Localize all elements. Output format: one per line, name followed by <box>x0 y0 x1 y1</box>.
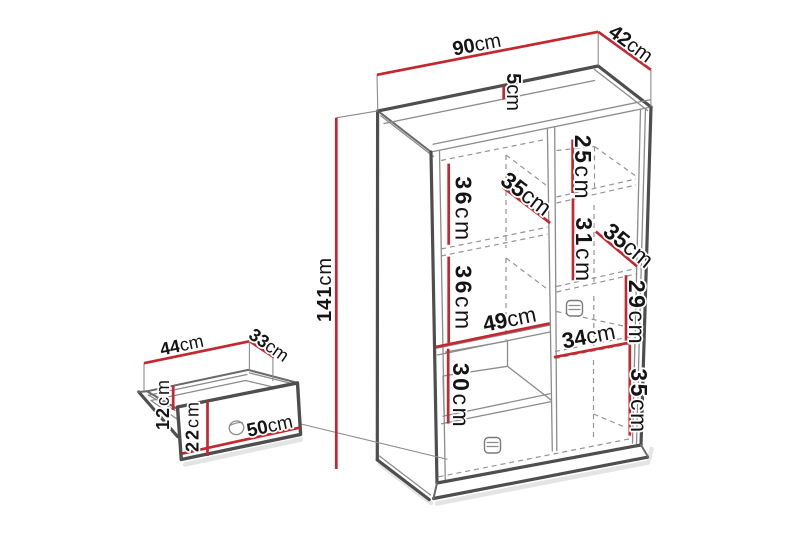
svg-text:36cm: 36cm <box>451 265 477 331</box>
svg-text:35cm: 35cm <box>626 368 652 434</box>
svg-text:141cm: 141cm <box>314 257 336 322</box>
svg-text:31cm: 31cm <box>571 217 597 283</box>
svg-text:30cm: 30cm <box>448 363 474 429</box>
svg-text:25cm: 25cm <box>570 135 596 201</box>
svg-text:5cm: 5cm <box>502 73 524 111</box>
svg-text:22cm: 22cm <box>183 400 203 452</box>
svg-text:12cm: 12cm <box>153 378 173 430</box>
svg-text:36cm: 36cm <box>451 176 477 242</box>
svg-text:29cm: 29cm <box>624 280 650 346</box>
